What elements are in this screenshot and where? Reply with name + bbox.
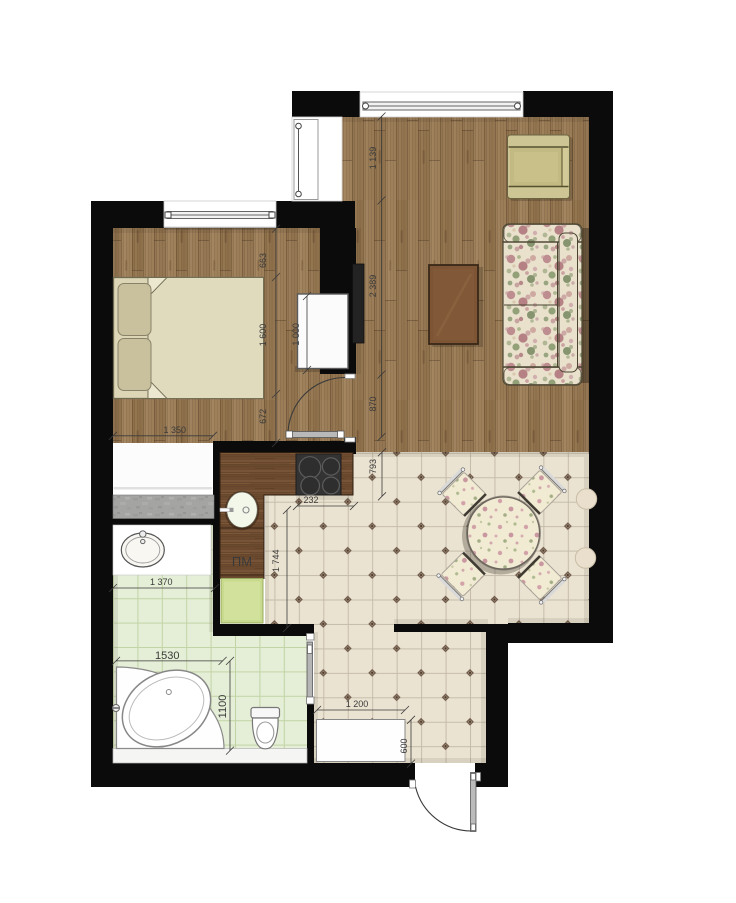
svg-text:1100: 1100: [217, 695, 229, 719]
svg-text:1 200: 1 200: [346, 699, 369, 709]
svg-text:ПМ: ПМ: [232, 554, 252, 569]
svg-text:663: 663: [258, 253, 268, 268]
svg-text:1 139: 1 139: [368, 147, 378, 170]
svg-text:1 600: 1 600: [258, 324, 268, 347]
svg-text:793: 793: [368, 459, 378, 474]
svg-text:2 389: 2 389: [368, 275, 378, 298]
svg-text:1530: 1530: [155, 650, 179, 662]
svg-text:870: 870: [368, 396, 378, 411]
svg-text:600: 600: [399, 738, 409, 753]
svg-text:1 000: 1 000: [291, 323, 301, 346]
svg-text:232: 232: [303, 495, 318, 505]
svg-text:672: 672: [258, 409, 268, 424]
svg-text:1 370: 1 370: [150, 577, 173, 587]
svg-text:1 350: 1 350: [164, 425, 187, 435]
svg-text:1 744: 1 744: [271, 549, 281, 572]
